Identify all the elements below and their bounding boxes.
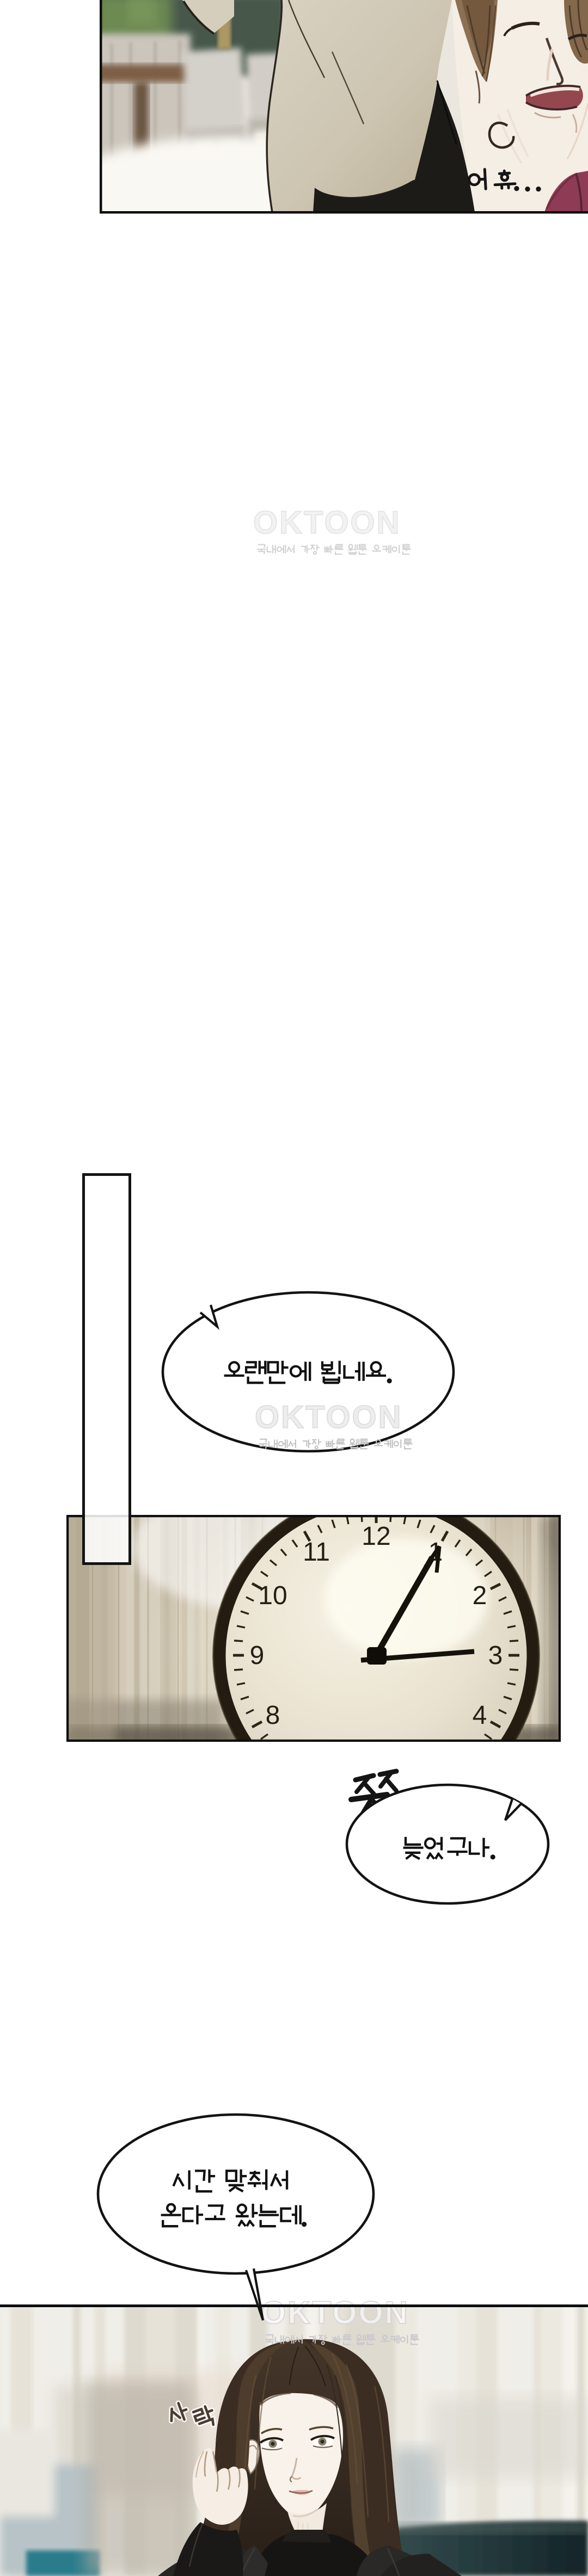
svg-text:12: 12 xyxy=(362,1522,390,1551)
svg-text:8: 8 xyxy=(266,1701,280,1730)
svg-text:10: 10 xyxy=(258,1581,287,1610)
svg-text:4: 4 xyxy=(473,1701,487,1730)
svg-text:9: 9 xyxy=(250,1641,265,1670)
svg-text:3: 3 xyxy=(488,1641,503,1670)
svg-text:11: 11 xyxy=(303,1538,330,1567)
svg-text:2: 2 xyxy=(473,1581,487,1610)
